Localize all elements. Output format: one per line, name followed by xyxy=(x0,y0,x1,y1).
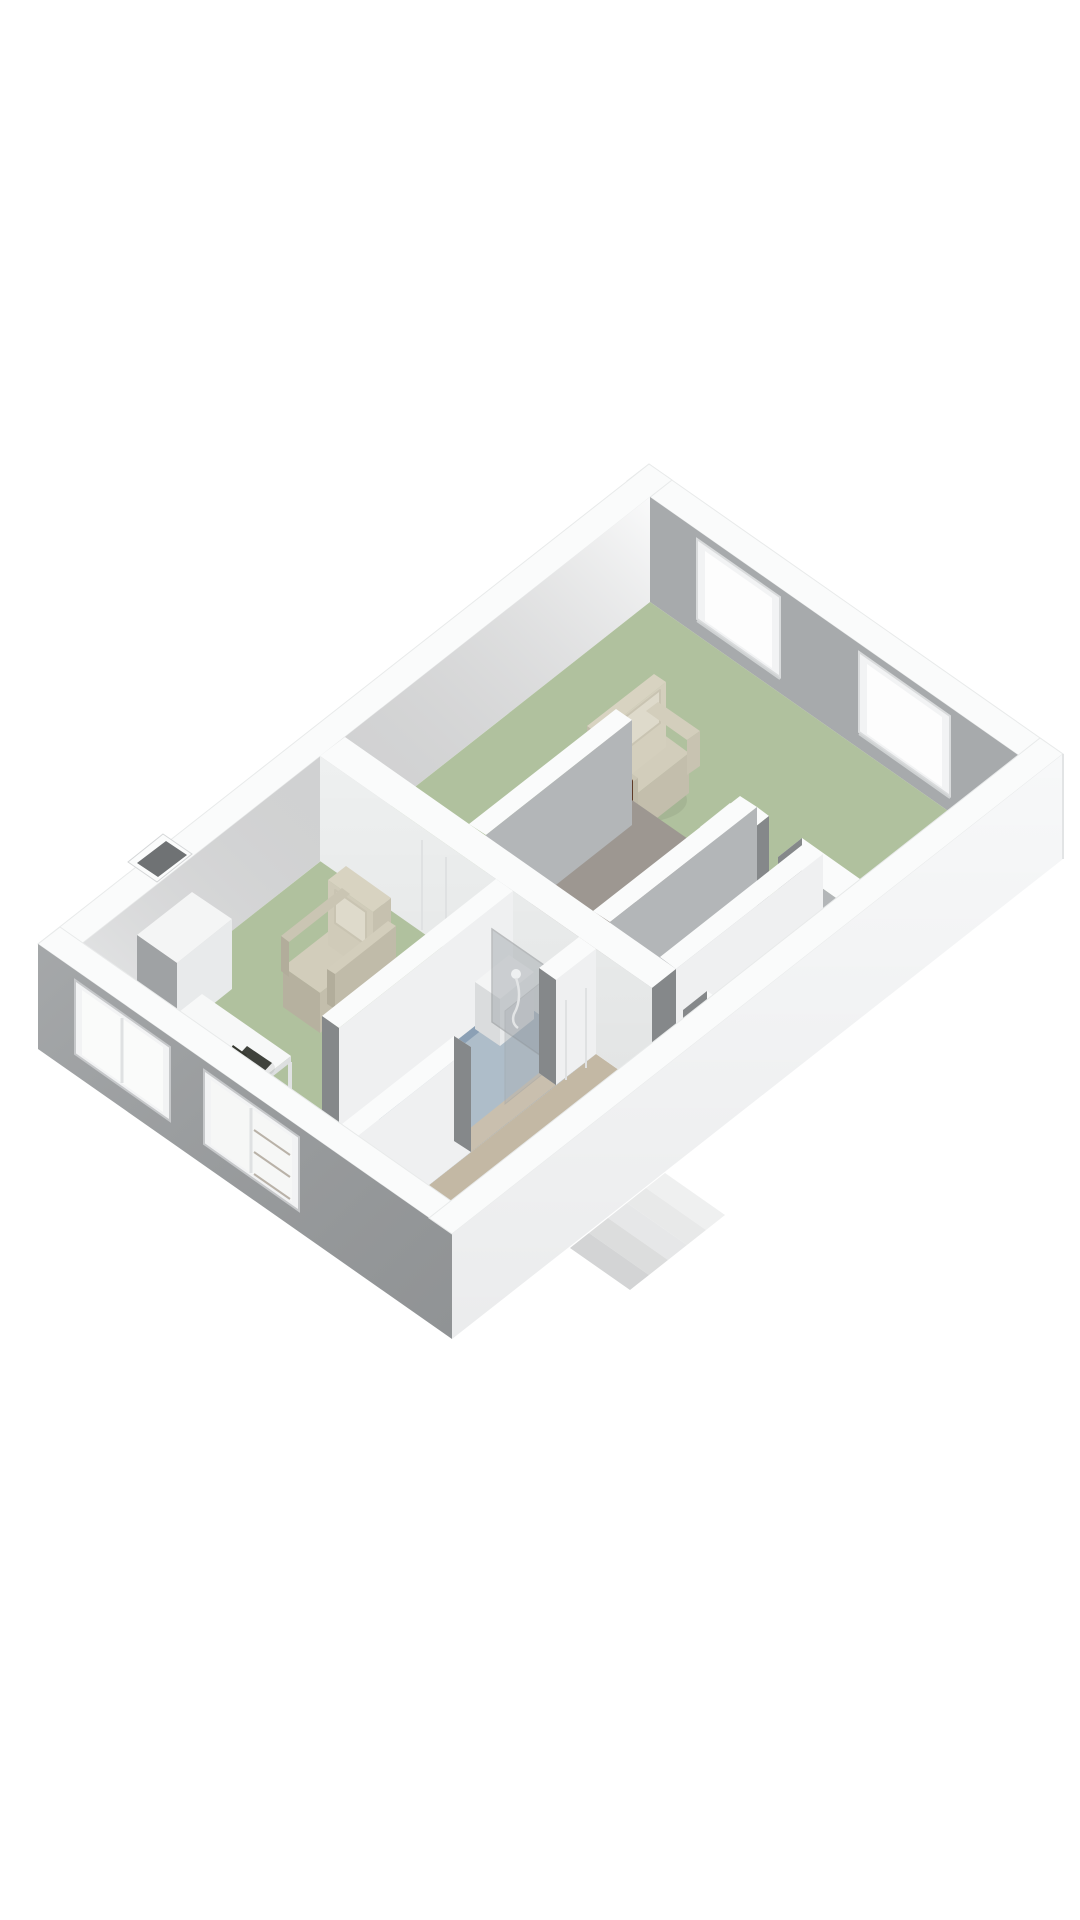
floorplan-3d-svg xyxy=(0,0,1080,1920)
floorplan-canvas xyxy=(0,0,1080,1920)
